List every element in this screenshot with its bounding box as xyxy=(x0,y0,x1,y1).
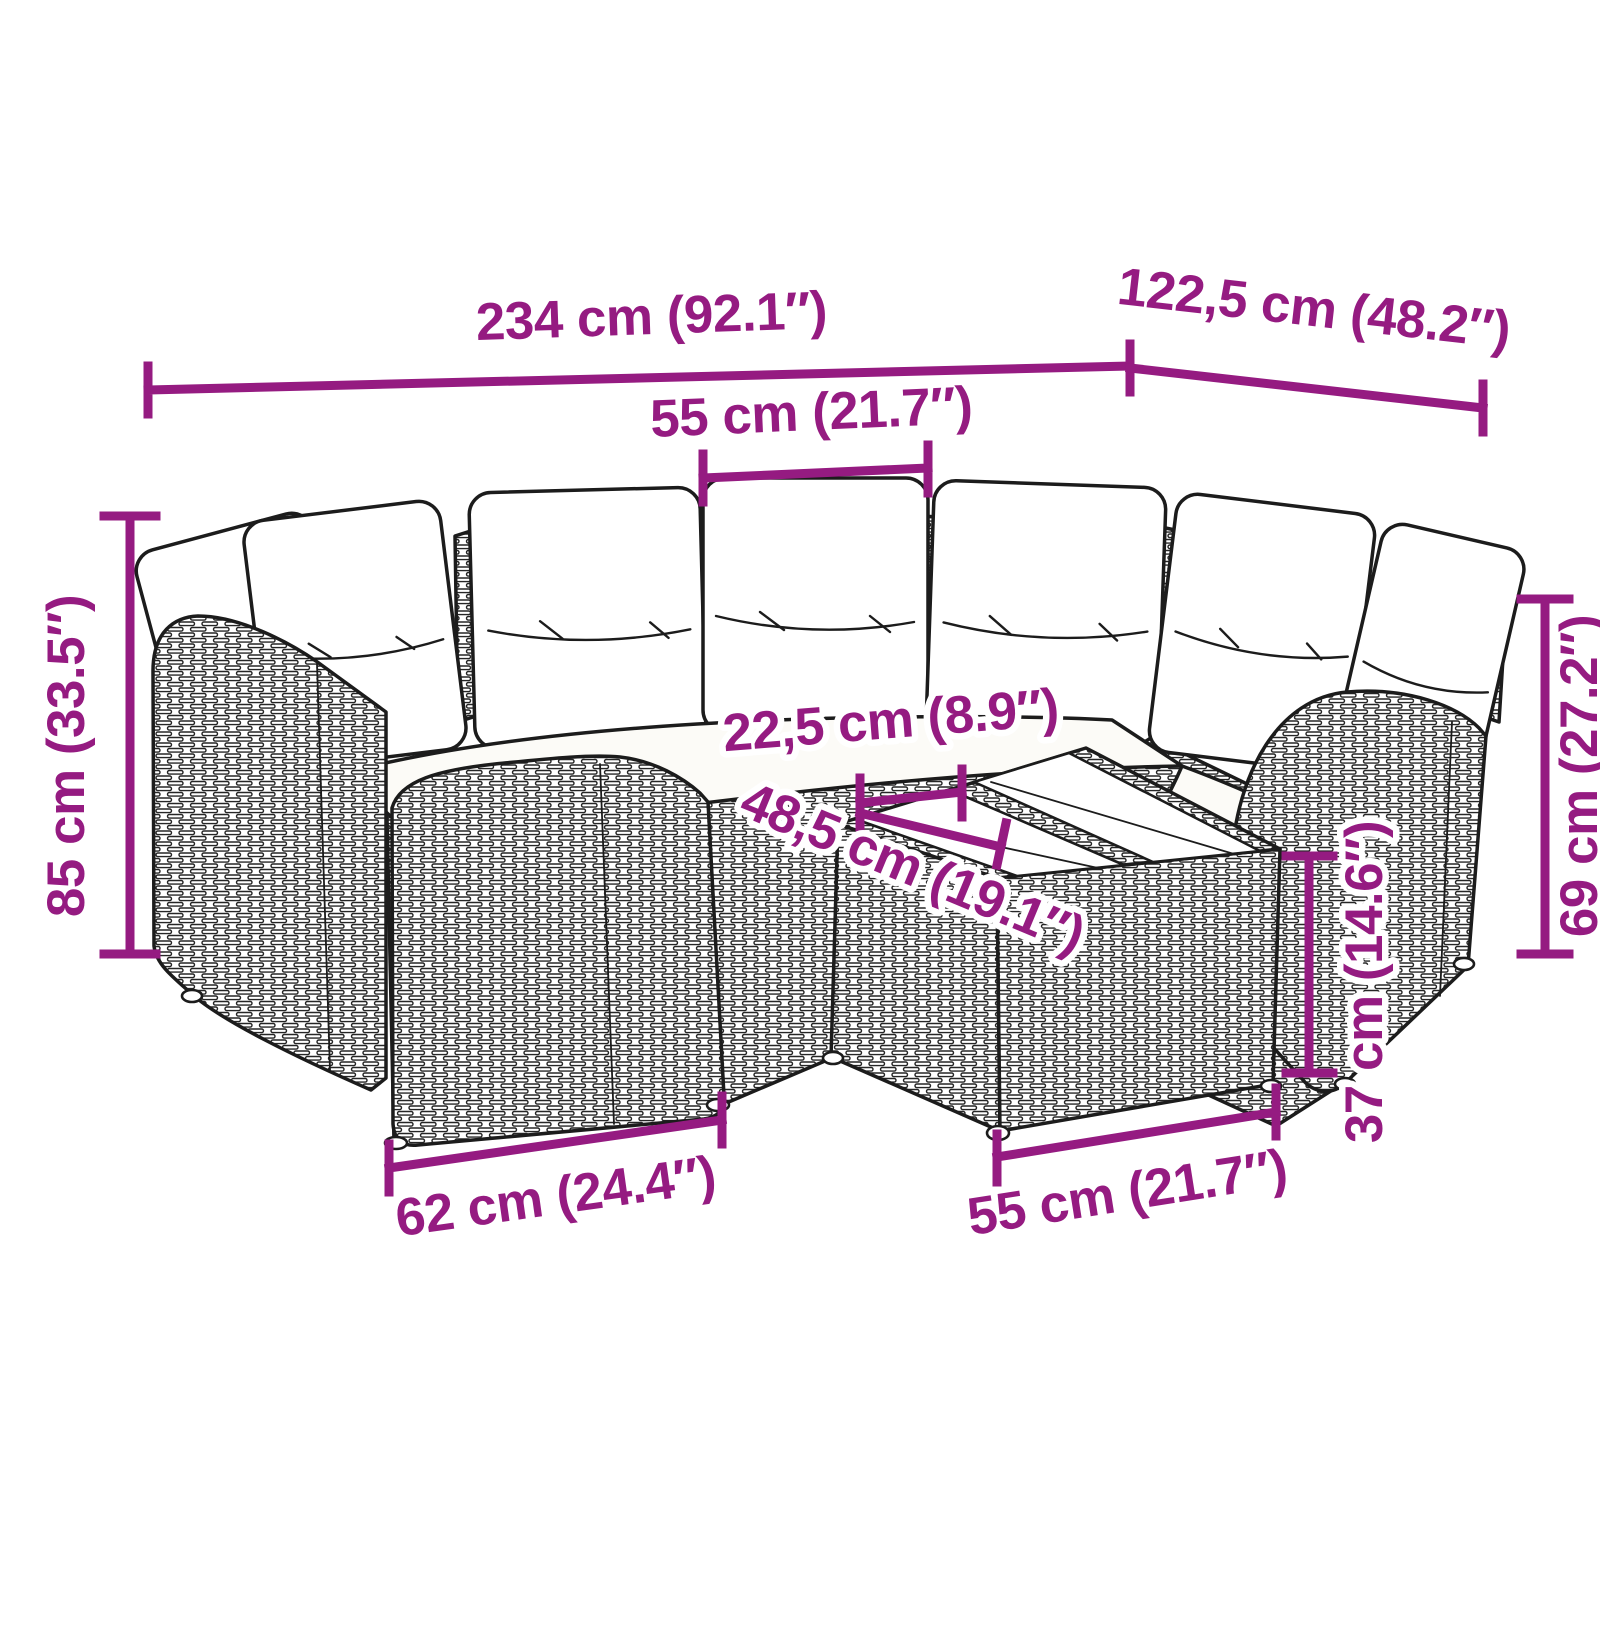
dimension-diagram: 234 cm (92.1″) 122,5 cm (48.2″) 55 cm (2… xyxy=(40,16,1600,1616)
dim-total-height-label: 85 cm (33.5″) xyxy=(40,595,96,917)
dim-side-depth-label: 122,5 cm (48.2″) xyxy=(1115,257,1514,360)
dim-back-height-label: 69 cm (27.2″) xyxy=(1550,615,1600,937)
back-cushion xyxy=(469,487,707,749)
dim-seat-width-label: 55 cm (21.7″) xyxy=(649,376,974,449)
dim-total-width: 234 cm (92.1″) xyxy=(148,281,1130,414)
dim-back-height: 69 cm (27.2″) xyxy=(1521,599,1600,954)
dim-side-depth: 122,5 cm (48.2″) xyxy=(1115,257,1514,432)
left-rear-armrest xyxy=(153,616,386,1090)
diagram-canvas: 234 cm (92.1″) 122,5 cm (48.2″) 55 cm (2… xyxy=(40,16,1600,1616)
front-left-armrest xyxy=(392,756,724,1145)
dim-total-width-label: 234 cm (92.1″) xyxy=(475,281,828,352)
dim-table-height-label: 37 cm (14.6″) xyxy=(1335,821,1394,1143)
